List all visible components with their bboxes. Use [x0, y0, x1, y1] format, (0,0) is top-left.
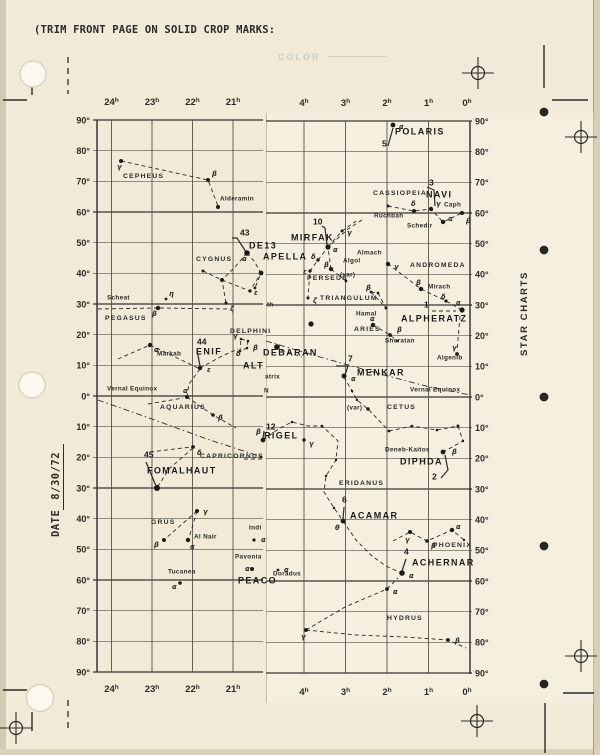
- star-name-label: ACHERNAR: [412, 557, 475, 567]
- star: [457, 425, 460, 428]
- hour-label-top: 4h: [299, 98, 308, 109]
- hour-label-top: 3h: [341, 98, 350, 109]
- star: [335, 459, 337, 461]
- star: [195, 509, 199, 513]
- star-proper-name-label: Alderamin: [220, 196, 254, 203]
- star: [191, 445, 195, 449]
- dec-label-right: 10°: [475, 423, 489, 433]
- dec-label-left: 60°: [76, 575, 90, 585]
- greek-letter-label: α: [190, 543, 195, 551]
- constellation-line: [306, 630, 466, 648]
- dec-label-left: 90°: [76, 115, 90, 125]
- star: [446, 638, 450, 642]
- dec-label-right: 30°: [475, 300, 489, 310]
- constellation-label: ERIDANUS: [339, 480, 384, 487]
- greek-letter-label: β: [430, 542, 436, 550]
- greek-letter-label: δ: [411, 200, 416, 208]
- greek-letter-label: α: [409, 572, 414, 580]
- star-name-label: PEACO: [238, 575, 277, 585]
- star: [248, 289, 251, 292]
- star: [307, 297, 310, 300]
- dec-label-right: 70°: [475, 178, 489, 188]
- constellation-label: ARIES: [354, 326, 381, 333]
- dec-label-left: 10°: [76, 422, 90, 432]
- greek-letter-label: α: [284, 566, 289, 574]
- star: [216, 205, 220, 209]
- star-proper-name-label: Sheratan: [385, 338, 415, 345]
- star-name-label: DE13: [249, 240, 277, 250]
- star-number-label: 1: [424, 299, 429, 309]
- hour-label-top: 23h: [145, 97, 160, 108]
- star-proper-name-label: Algenib: [437, 355, 463, 362]
- star: [388, 333, 392, 337]
- dec-label-left: 50°: [76, 545, 90, 555]
- greek-letter-label: θ: [335, 524, 340, 532]
- hour-label-top: 24h: [104, 97, 119, 108]
- constellation-line: [247, 253, 261, 288]
- dec-label-right: 20°: [475, 331, 489, 341]
- star: [246, 347, 249, 350]
- constellation-line: [203, 271, 261, 291]
- star: [206, 178, 210, 182]
- hour-label-bottom: 22h: [185, 684, 200, 695]
- constellation-line: [389, 426, 458, 431]
- star: [325, 475, 327, 477]
- greek-letter-label: β: [217, 414, 223, 422]
- star-proper-name-label: (var): [347, 405, 362, 412]
- star: [459, 307, 464, 312]
- greek-letter-label: α: [370, 315, 375, 323]
- hour-label-bottom: 4h: [299, 687, 308, 698]
- greek-letter-label: α: [261, 536, 266, 544]
- greek-letter-label: α: [456, 299, 461, 307]
- dec-label-right: 20°: [475, 454, 489, 464]
- star-proper-name-label: N: [264, 388, 269, 395]
- constellation-line: [187, 397, 236, 428]
- hour-label-bottom: 1h: [424, 687, 433, 698]
- star-name-label: ACAMAR: [350, 510, 398, 520]
- star: [386, 262, 390, 266]
- punch-hole: [20, 61, 46, 87]
- greek-letter-label: β: [454, 637, 460, 645]
- star: [436, 429, 439, 432]
- star: [148, 343, 152, 347]
- greek-letter-label: δ: [236, 350, 241, 358]
- star: [441, 450, 446, 455]
- dec-label-right: 10°: [475, 362, 489, 372]
- star: [304, 628, 308, 632]
- greek-letter-label: α: [333, 246, 338, 254]
- constellation-label: PEGASUS: [105, 315, 147, 322]
- star: [186, 538, 190, 542]
- star: [178, 581, 182, 585]
- constellation-label: TRIANGULUM: [320, 295, 378, 302]
- greek-letter-label: α: [183, 387, 188, 395]
- greek-letter-label: γ: [117, 163, 123, 171]
- star: [462, 440, 464, 442]
- star-number-label: 4: [404, 546, 409, 556]
- star: [412, 209, 416, 213]
- dec-label-right: 90°: [475, 116, 489, 126]
- star-name-label: NAVI: [426, 189, 452, 199]
- star-number-label: 45: [144, 449, 154, 459]
- hour-label-top: 22h: [185, 97, 200, 108]
- color-bar-dot: [540, 542, 549, 551]
- constellation-label: CEPHEUS: [123, 173, 164, 180]
- greek-letter-label: ε: [254, 289, 258, 297]
- star-name-label: DIPHDA: [400, 456, 443, 466]
- greek-letter-label: δ: [311, 253, 316, 261]
- star: [408, 530, 412, 534]
- greek-letter-label: β: [415, 279, 421, 287]
- star-proper-name-label: Pavonia: [235, 554, 262, 561]
- greek-letter-label: ζ: [230, 305, 235, 313]
- dec-label-left: 30°: [76, 483, 90, 493]
- star: [202, 270, 205, 273]
- star-proper-name-label: Indi: [249, 525, 262, 532]
- star: [388, 430, 391, 433]
- star-proper-name-label: Markab: [157, 351, 181, 358]
- star: [341, 519, 346, 524]
- star: [366, 407, 369, 410]
- color-bar-dot: [540, 246, 549, 255]
- greek-letter-label: β: [252, 344, 258, 352]
- star-number-label: 6: [342, 494, 347, 504]
- star: [220, 278, 224, 282]
- constellation-label: CETUS: [387, 404, 416, 411]
- greek-letter-label: α: [448, 215, 453, 223]
- dec-label-right: 40°: [475, 270, 489, 280]
- star-name-label: APELLA: [263, 251, 307, 261]
- greek-letter-label: α: [242, 255, 247, 263]
- hour-label-top: 2h: [382, 98, 391, 109]
- star: [225, 302, 228, 305]
- star-number-pointer: [388, 128, 393, 146]
- dec-label-right: 40°: [475, 515, 489, 525]
- star: [419, 287, 423, 291]
- dec-label-right: 80°: [475, 638, 489, 648]
- star: [329, 267, 333, 271]
- greek-letter-label: β: [323, 261, 329, 269]
- star-name-label: ENIF: [196, 346, 222, 356]
- constellation-label: AQUARIUS: [160, 404, 206, 411]
- star-proper-name-label: Caph: [444, 202, 461, 209]
- hour-label-bottom: 24h: [104, 684, 119, 695]
- star-proper-name-label: Algol: [343, 258, 360, 265]
- constellation-line: [187, 369, 200, 396]
- star-name-label: ALT: [243, 360, 264, 370]
- star: [308, 269, 311, 272]
- greek-letter-label: α: [351, 375, 356, 383]
- greek-letter-label: β: [465, 217, 471, 225]
- constellation-label: HYDRUS: [387, 615, 423, 622]
- star-proper-name-label: atrix: [265, 374, 280, 381]
- greek-letter-label: β: [153, 541, 159, 549]
- star: [460, 211, 464, 215]
- star: [165, 298, 168, 301]
- hour-label-bottom: 21h: [226, 684, 241, 695]
- star-name-label: DEBARAN: [263, 347, 318, 357]
- constellation-line: [98, 308, 156, 309]
- star: [198, 366, 202, 370]
- constellation-label: CYGNUS: [196, 256, 232, 263]
- star-name-label: FOMALHAUT: [147, 465, 217, 475]
- star-proper-name-label: Schedir: [407, 223, 433, 230]
- star-number-label: 10: [313, 216, 323, 226]
- star: [259, 271, 264, 276]
- dec-label-left: 30°: [76, 299, 90, 309]
- star-chart-svg: 90°90°80°80°70°70°60°60°50°50°40°40°30°3…: [0, 0, 600, 755]
- star: [441, 220, 445, 224]
- star: [425, 539, 429, 543]
- star-number-pointer: [402, 559, 406, 571]
- constellation-label: GRUS: [151, 519, 175, 526]
- hour-label-top: 1h: [424, 98, 433, 109]
- dec-label-left: 70°: [76, 606, 90, 616]
- greek-letter-label: α: [172, 583, 177, 591]
- dec-label-left: 20°: [76, 330, 90, 340]
- dec-label-right: 50°: [475, 546, 489, 556]
- dec-label-right: 90°: [475, 668, 489, 678]
- constellation-line: [343, 521, 399, 572]
- hour-label-bottom: 2h: [382, 687, 391, 698]
- star: [308, 321, 313, 326]
- star-proper-name-label: Vernal Equinox: [107, 386, 158, 393]
- star-number-label: 43: [240, 227, 250, 237]
- greek-letter-label: α: [399, 123, 404, 131]
- dec-label-left: 0°: [81, 391, 90, 401]
- dec-label-right: 70°: [475, 607, 489, 617]
- star-number-label: 5: [382, 138, 387, 148]
- star-proper-name-label: Mirach: [428, 284, 450, 291]
- greek-letter-label: ε: [207, 366, 211, 374]
- star: [302, 438, 305, 441]
- star-number-label: 7: [348, 353, 353, 363]
- star: [450, 528, 454, 532]
- color-bar-dot: [540, 108, 549, 117]
- greek-letter-label: γ: [405, 536, 411, 544]
- hour-label-top: 21h: [226, 97, 241, 108]
- dec-label-left: 50°: [76, 238, 90, 248]
- dec-label-right: 0°: [475, 392, 484, 402]
- star: [247, 340, 250, 343]
- color-bar-dot: [540, 680, 549, 689]
- star-number-label: 44: [197, 336, 207, 346]
- greek-letter-label: γ: [203, 508, 209, 516]
- punch-hole: [19, 372, 45, 398]
- dec-label-right: 80°: [475, 147, 489, 157]
- constellation-line: [150, 447, 191, 452]
- star: [154, 485, 160, 491]
- star: [385, 587, 389, 591]
- dec-label-right: 30°: [475, 484, 489, 494]
- star-proper-name-label: Vernal Equinox: [410, 387, 461, 394]
- star: [385, 307, 388, 310]
- star: [250, 567, 254, 571]
- dec-label-left: 80°: [76, 637, 90, 647]
- star-name-label: MIRFAK: [291, 232, 334, 242]
- dec-label-right: 60°: [475, 576, 489, 586]
- star: [321, 425, 324, 428]
- star: [399, 570, 405, 576]
- hour-label-top: 0h: [462, 98, 471, 109]
- star: [316, 258, 319, 261]
- constellation-line: [121, 161, 218, 206]
- greek-letter-label: α: [245, 565, 250, 573]
- greek-letter-label: β: [396, 326, 402, 334]
- greek-letter-label: ε: [303, 268, 307, 276]
- dec-label-left: 40°: [76, 514, 90, 524]
- star-proper-name-label: Scheat: [107, 295, 130, 302]
- greek-letter-label: β: [211, 170, 217, 178]
- star: [185, 395, 189, 399]
- hour-label-bottom: 0h: [462, 687, 471, 698]
- star-number-label: 3: [429, 177, 434, 187]
- dec-label-left: 70°: [76, 177, 90, 187]
- greek-letter-label: γ: [301, 633, 307, 641]
- star-proper-name-label: Al Nair: [194, 534, 217, 541]
- greek-letter-label: γ: [394, 263, 400, 271]
- star: [325, 244, 330, 249]
- star-proper-name-label: th: [267, 302, 274, 309]
- star: [411, 425, 414, 428]
- greek-letter-label: ζ: [313, 297, 318, 305]
- constellation-label: PHOENIX: [433, 542, 472, 549]
- greek-letter-label: γ: [309, 440, 315, 448]
- dec-label-left: 80°: [76, 146, 90, 156]
- star-proper-name-label: Deneb-Kaitos: [385, 447, 430, 454]
- greek-letter-label: α: [456, 523, 461, 531]
- dec-label-right: 60°: [475, 208, 489, 218]
- constellation-label: CASSIOPEIA: [373, 190, 427, 197]
- dec-label-left: 20°: [76, 453, 90, 463]
- constellation-line: [306, 578, 398, 630]
- hour-label-bottom: 3h: [341, 687, 350, 698]
- constellation-label: CAPRICORNUS: [200, 453, 264, 460]
- star-proper-name-label: Ruchbah: [374, 213, 403, 220]
- dec-label-right: 50°: [475, 239, 489, 249]
- star: [356, 399, 358, 401]
- star: [429, 207, 433, 211]
- dec-label-left: 10°: [76, 361, 90, 371]
- greek-letter-label: γ: [436, 200, 442, 208]
- greek-letter-label: γ: [347, 229, 353, 237]
- constellation-label: ANDROMEDA: [410, 262, 466, 269]
- star: [351, 390, 353, 392]
- greek-letter-label: α: [154, 346, 159, 354]
- star: [291, 421, 294, 424]
- star-proper-name-label: (var): [340, 272, 355, 279]
- hour-label-bottom: 23h: [145, 684, 160, 695]
- star-number-label: 2: [432, 471, 437, 481]
- color-bar-dot: [540, 393, 549, 402]
- star-proper-name-label: Almach: [357, 250, 382, 257]
- punch-hole: [27, 685, 54, 712]
- star: [342, 374, 347, 379]
- star-name-label: RIGEL: [264, 430, 299, 440]
- dec-label-left: 90°: [76, 667, 90, 677]
- star-proper-name-label: Tucanea: [168, 569, 196, 576]
- star: [240, 338, 243, 341]
- star-number-pointer: [336, 366, 348, 375]
- scanned-star-chart-page: { "header": { "trim_note": "(TRIM FRONT …: [0, 0, 600, 755]
- star-name-label: MENKAR: [357, 367, 405, 377]
- greek-letter-label: β: [451, 448, 457, 456]
- star: [211, 413, 215, 417]
- star: [341, 230, 344, 233]
- greek-letter-label: η: [169, 290, 174, 298]
- star: [252, 538, 255, 541]
- star: [387, 205, 390, 208]
- greek-letter-label: β: [365, 284, 371, 292]
- constellation-line: [160, 308, 228, 309]
- greek-letter-label: β: [151, 310, 157, 318]
- star: [333, 507, 335, 509]
- star-number-label: 12: [266, 421, 276, 431]
- greek-letter-label: β: [255, 428, 261, 436]
- dec-label-left: 60°: [76, 207, 90, 217]
- greek-letter-label: δ: [197, 449, 202, 457]
- star-number-pointer: [343, 507, 344, 519]
- dec-label-left: 40°: [76, 269, 90, 279]
- star: [162, 538, 166, 542]
- greek-letter-label: δ: [441, 293, 446, 301]
- greek-letter-label: α: [393, 588, 398, 596]
- star-number-pointer: [232, 238, 246, 252]
- star-name-label: ALPHERATZ: [401, 313, 467, 323]
